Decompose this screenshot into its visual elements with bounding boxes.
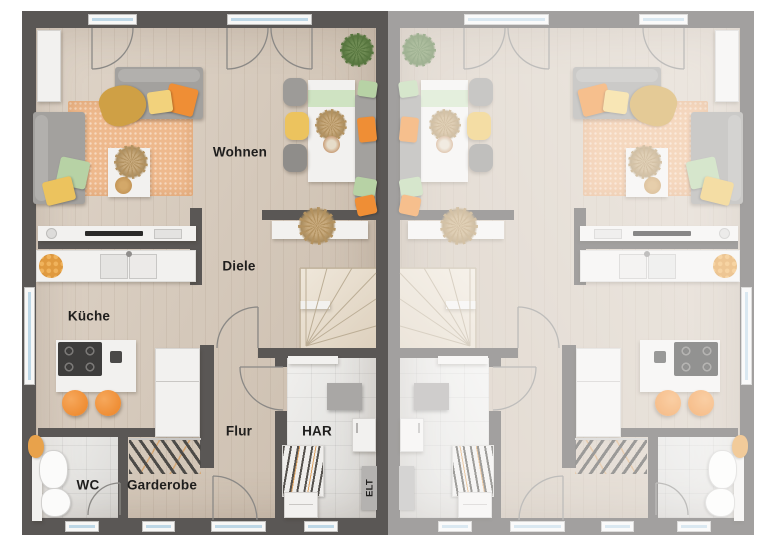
har-appliance xyxy=(400,418,424,452)
unit-right-mirrored xyxy=(388,11,754,535)
wc-window xyxy=(677,521,711,532)
kitchen-sink-2 xyxy=(129,254,157,279)
faucet xyxy=(644,251,650,257)
island-sink xyxy=(654,351,666,363)
dining-chair-3 xyxy=(469,144,493,172)
wall-party xyxy=(376,11,388,535)
terrace-door-1 xyxy=(639,14,688,25)
dining-chair-3 xyxy=(283,144,307,172)
label-flur: Flur xyxy=(226,424,252,439)
coffee-table-plant xyxy=(114,145,148,179)
terrace-door-2 xyxy=(227,14,312,25)
fruit-bowl xyxy=(39,254,63,278)
washer-line xyxy=(289,504,313,505)
garderobe-window xyxy=(601,521,634,532)
kitchen-window xyxy=(741,287,752,385)
wall-wc-garderobe xyxy=(648,437,658,518)
bar-stool-1 xyxy=(62,390,88,416)
cabinet-divider xyxy=(156,381,199,382)
coffee-table-plant xyxy=(628,145,662,179)
tall-cabinet xyxy=(715,30,739,102)
entrance-door xyxy=(211,521,266,532)
har-shelf xyxy=(438,356,488,364)
deco-left xyxy=(46,228,57,239)
wc-towel xyxy=(732,435,748,458)
garderobe-window xyxy=(142,521,175,532)
wall-top xyxy=(388,11,754,28)
bench-pillow-orange-2 xyxy=(398,194,422,217)
console-plant xyxy=(298,207,336,245)
washer xyxy=(284,492,318,518)
sofa-back xyxy=(118,69,200,82)
label-garderobe: Garderobe xyxy=(127,478,197,493)
elt-panel xyxy=(399,466,414,510)
fruit-bowl xyxy=(713,254,737,278)
terrace-door-1 xyxy=(88,14,137,25)
pillow-yellow xyxy=(147,89,174,114)
floorplan-canvas: Wohnen Diele Küche Flur HAR WC Garderobe… xyxy=(0,0,775,554)
woven-tray xyxy=(644,177,661,194)
bench-pillow-orange-2 xyxy=(354,194,378,217)
washer xyxy=(458,492,492,518)
faucet xyxy=(126,251,132,257)
har-shelf xyxy=(288,356,338,364)
bar-stool-2 xyxy=(655,390,681,416)
label-elt: ELT xyxy=(365,479,376,497)
fruit-bowl-table xyxy=(323,136,340,153)
dining-chair-1 xyxy=(469,78,493,106)
table-runner xyxy=(308,90,355,107)
dining-chair-1 xyxy=(283,78,307,106)
label-wc: WC xyxy=(77,478,100,493)
har-gray-box xyxy=(414,383,449,410)
drying-rack xyxy=(452,445,494,497)
har-gray-box xyxy=(327,383,362,410)
stair-step-edge xyxy=(300,301,330,309)
kitchen-sink xyxy=(100,254,128,279)
corner-plant xyxy=(340,33,374,67)
fridge-cabinet xyxy=(576,348,621,437)
cooktop xyxy=(674,342,718,376)
wc-toilet xyxy=(705,488,735,517)
unit-left: Wohnen Diele Küche Flur HAR WC Garderobe… xyxy=(22,11,388,535)
duplex-floorplan: Wohnen Diele Küche Flur HAR WC Garderobe… xyxy=(0,0,775,554)
appliance-handle xyxy=(418,423,420,433)
island-sink xyxy=(110,351,122,363)
bench-pillow-orange xyxy=(357,116,378,143)
coat-rack xyxy=(129,438,201,474)
kitchen-window xyxy=(24,287,35,385)
tv xyxy=(85,231,143,236)
dining-chair-2 xyxy=(467,112,491,140)
tall-cabinet xyxy=(37,30,61,102)
coat-rack xyxy=(575,438,647,474)
label-diele: Diele xyxy=(222,259,255,274)
har-window xyxy=(304,521,338,532)
har-window xyxy=(438,521,472,532)
pillow-yellow xyxy=(603,89,630,114)
har-appliance xyxy=(352,418,376,452)
deco-left xyxy=(719,228,730,239)
bar-stool-1 xyxy=(688,390,714,416)
entrance-door xyxy=(510,521,565,532)
label-wohnen: Wohnen xyxy=(213,145,267,160)
console-plant xyxy=(440,207,478,245)
wall-kueche-flur xyxy=(200,345,214,468)
wall-wohnen-kueche xyxy=(574,240,738,249)
bench-cushion-green xyxy=(357,80,378,98)
washer-line xyxy=(463,504,487,505)
wall-top xyxy=(22,11,388,28)
tv xyxy=(633,231,691,236)
woven-tray xyxy=(115,177,132,194)
wc-sink xyxy=(39,450,68,489)
cabinet-divider xyxy=(577,381,620,382)
kitchen-sink-2 xyxy=(619,254,647,279)
bench-cushion-green xyxy=(398,80,419,98)
appliance-handle xyxy=(356,423,358,433)
corner-plant xyxy=(402,33,436,67)
label-kueche: Küche xyxy=(68,309,110,324)
terrace-door-2 xyxy=(464,14,549,25)
fridge-cabinet xyxy=(155,348,200,437)
deco-right xyxy=(594,229,622,239)
wc-sink xyxy=(708,450,737,489)
dining-chair-2 xyxy=(285,112,309,140)
stair-step-edge xyxy=(446,301,476,309)
bar-stool-2 xyxy=(95,390,121,416)
cooktop xyxy=(58,342,102,376)
label-har: HAR xyxy=(302,424,332,439)
fruit-bowl-table xyxy=(436,136,453,153)
wall-kueche-flur xyxy=(562,345,576,468)
wc-window xyxy=(65,521,99,532)
sofa-back xyxy=(576,69,658,82)
drying-rack xyxy=(282,445,324,497)
wall-wohnen-kueche xyxy=(38,240,202,249)
table-runner xyxy=(421,90,468,107)
kitchen-sink xyxy=(648,254,676,279)
bench-pillow-orange xyxy=(399,116,420,143)
deco-right xyxy=(154,229,182,239)
wc-toilet xyxy=(41,488,71,517)
